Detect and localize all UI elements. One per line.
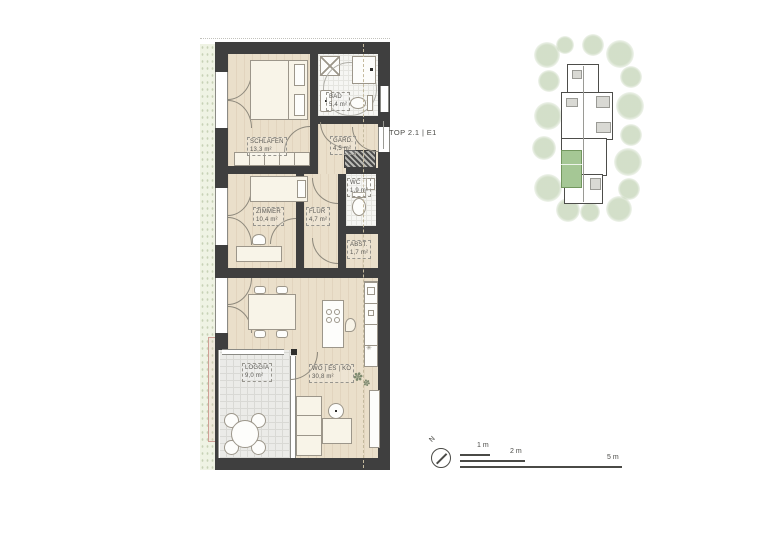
shower-drain [370,68,373,71]
room-label-flur: FLUR 4,7 m² [306,207,330,226]
kitchen-symbol: ✳ [366,344,372,352]
room-area: 4,5 m² [333,146,353,154]
cooktop-burner [326,317,332,323]
sideboard [369,390,380,448]
sofa [296,396,322,456]
kitchen-appliance [368,310,374,316]
room-label-zimmer: ZIMMER 10,4 m² [253,207,284,226]
unit-title-leader [383,121,384,149]
room-area: 5,4 m² [329,102,347,110]
wall [338,174,346,178]
bed-pillow [297,180,306,198]
room-name: ABST. [350,242,368,250]
wall [338,202,346,238]
main-floorplan: ✳ ✽ ✽ SCHLAFEN 13,3 m² BA [0,0,480,545]
keyplan-room [590,178,601,190]
room-area: 10,4 m² [256,217,281,225]
room-area: 4,7 m² [309,217,327,225]
wall [332,268,378,278]
tree-icon [606,196,632,222]
dining-chair [254,330,266,338]
dining-chair [276,286,288,294]
plot-boundary-line [200,38,390,39]
loggia-glazing-top [222,349,284,355]
loggia-railing [218,350,220,458]
scale-line-5m [460,466,622,468]
scale-bar: 1 m 2 m 5 m [455,438,635,473]
dining-chair [276,330,288,338]
room-name: ZIMMER [256,209,281,217]
scale-line-1m [460,454,490,456]
room-name: GARD. [333,138,353,146]
wall [296,244,304,268]
kitchen-island [322,300,344,348]
keyplan-room [572,70,582,79]
room-name: LOGGIA [245,365,269,373]
tree-icon [620,124,642,146]
scale-label-1m: 1 m [477,442,489,449]
room-label-wc: WC 1,9 m² [347,178,371,197]
dining-chair [254,286,266,294]
room-label-bad: BAD 5,4 m² [326,92,350,111]
room-name: FLUR [309,209,327,217]
bad-wall-niche [380,86,389,112]
cooktop-burner [334,317,340,323]
room-label-abst: ABST. 1,7 m² [347,240,371,259]
tree-icon [538,70,560,92]
desk-chair [252,234,266,245]
tree-icon [620,66,642,88]
keyplan-corridor-line [583,66,584,202]
room-area: 1,9 m² [350,188,368,196]
dining-table [248,294,296,330]
keyplan-room [596,122,611,133]
room-name: WC [350,180,368,188]
island-sink [345,318,356,332]
wall [346,226,378,234]
window-schlafen [215,72,228,128]
cooktop-burner [326,309,332,315]
floorplan-sheet: ✳ ✽ ✽ SCHLAFEN 13,3 m² BA [0,0,771,545]
cooktop-burner [334,309,340,315]
tree-icon [582,34,604,56]
tree-icon [534,174,562,202]
room-label-schlafen: SCHLAFEN 13,3 m² [247,137,287,156]
loggia-table [231,420,259,448]
bed-pillow [294,64,305,86]
keyplan-unit-highlight [561,150,582,188]
north-label: N [428,435,437,444]
tree-icon [616,92,644,120]
room-area: 1,7 m² [350,250,368,258]
desk [236,246,282,262]
window-zimmer [215,188,228,245]
wall [346,168,378,174]
kitchen-appliance [367,287,375,295]
scale-label-5m: 5 m [607,454,619,461]
bed-pillow [294,94,305,116]
room-label-gard: GARD. 4,5 m² [330,136,356,155]
window-wohnen [215,278,228,333]
room-area: 13,3 m² [250,147,284,155]
tree-icon [614,148,642,176]
room-name: WO | ES | KO [312,366,351,374]
room-name: SCHLAFEN [250,139,284,147]
tree-icon [534,102,562,130]
scale-line-2m [460,460,525,462]
toilet-bad-tank [367,95,373,111]
sofa-chaise [322,418,352,444]
tree-icon [580,202,600,222]
wall [228,166,310,174]
bed-blanket-line [288,61,289,119]
wall [228,268,304,278]
room-area: 9,0 m² [245,373,269,381]
room-label-loggia: LOGGIA 9,0 m² [242,363,272,382]
wall [346,116,378,124]
room-label-wohnen: WO | ES | KO 30,8 m² [309,364,354,383]
tree-icon [532,136,556,160]
coffee-table-center [335,410,337,412]
room-name: BAD [329,94,347,102]
keyplan-unit-divider [561,164,582,165]
unit-title: TOP 2.1 | E1 [389,128,437,137]
tree-icon [556,36,574,54]
keyplan-room [596,96,610,108]
tree-icon [606,40,634,68]
room-area: 30,8 m² [312,374,351,382]
scale-label-2m: 2 m [510,448,522,455]
wall [310,152,318,174]
key-plan [528,32,643,222]
keyplan-room [566,98,578,107]
